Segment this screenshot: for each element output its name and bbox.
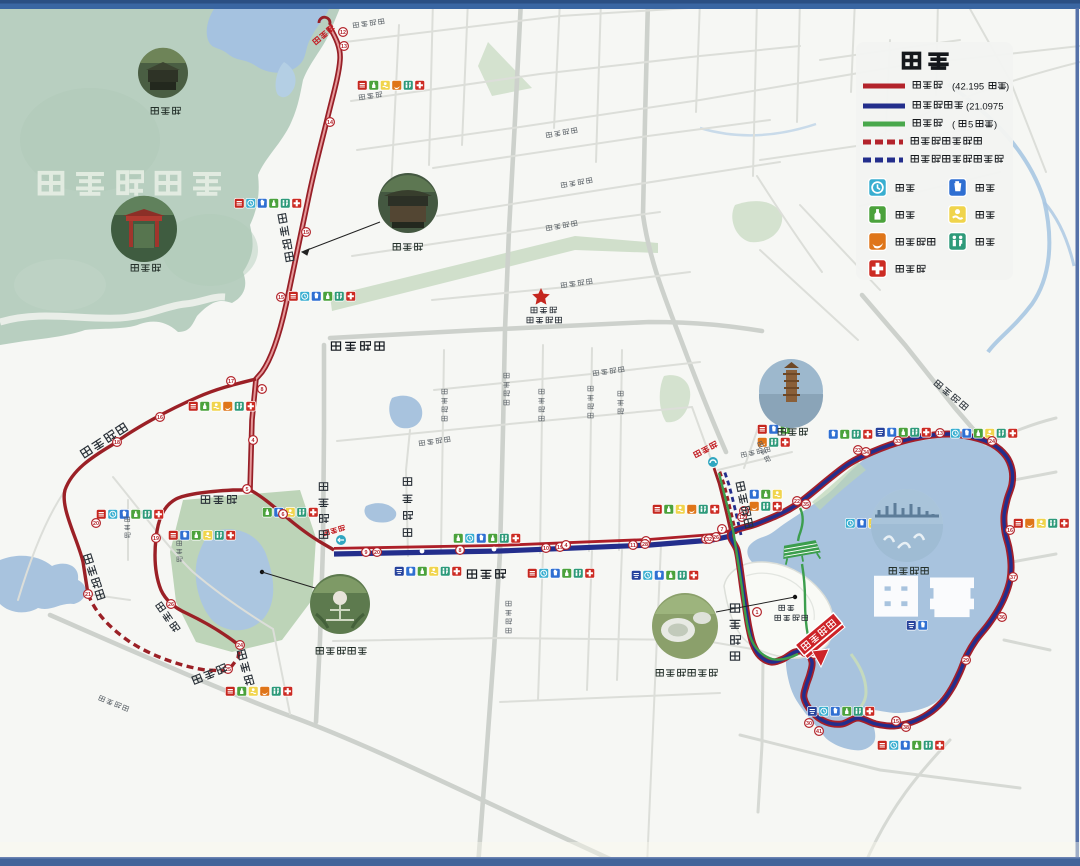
svg-text:34: 34 bbox=[863, 450, 869, 456]
svg-text:19: 19 bbox=[153, 536, 159, 542]
svg-text:6: 6 bbox=[282, 512, 285, 518]
svg-text:29: 29 bbox=[963, 658, 969, 664]
svg-text:7: 7 bbox=[721, 527, 724, 533]
svg-text:36: 36 bbox=[999, 615, 1005, 621]
svg-text:22: 22 bbox=[794, 499, 800, 505]
svg-text:11: 11 bbox=[630, 543, 636, 549]
svg-text:24: 24 bbox=[989, 439, 995, 445]
svg-text:21: 21 bbox=[85, 592, 91, 598]
svg-text:(42.195: (42.195 bbox=[952, 82, 984, 93]
svg-text:12: 12 bbox=[340, 30, 346, 36]
svg-text:): ) bbox=[1006, 82, 1009, 93]
svg-text:13: 13 bbox=[937, 431, 943, 437]
svg-text:8: 8 bbox=[261, 387, 264, 393]
svg-text:14: 14 bbox=[327, 120, 333, 126]
svg-text:9: 9 bbox=[365, 550, 368, 556]
svg-text:5: 5 bbox=[968, 120, 973, 131]
svg-text:15: 15 bbox=[278, 295, 284, 301]
svg-text:13: 13 bbox=[341, 44, 347, 50]
svg-text:15: 15 bbox=[893, 719, 899, 725]
svg-text:35: 35 bbox=[803, 502, 809, 508]
svg-text:17: 17 bbox=[228, 379, 234, 385]
svg-text:38: 38 bbox=[903, 725, 909, 731]
svg-text:4: 4 bbox=[252, 438, 255, 444]
svg-text:20: 20 bbox=[374, 550, 380, 556]
svg-text:26: 26 bbox=[713, 535, 719, 541]
svg-text:8: 8 bbox=[459, 548, 462, 554]
svg-text:33: 33 bbox=[895, 439, 901, 445]
svg-text:24: 24 bbox=[237, 643, 243, 649]
svg-text:): ) bbox=[994, 120, 997, 131]
svg-text:37: 37 bbox=[1010, 575, 1016, 581]
svg-text:28: 28 bbox=[642, 542, 648, 548]
svg-text:(21.0975: (21.0975 bbox=[966, 102, 1004, 113]
svg-text:5: 5 bbox=[246, 487, 249, 493]
svg-text:1: 1 bbox=[756, 610, 759, 616]
svg-text:26: 26 bbox=[168, 602, 174, 608]
svg-text:20: 20 bbox=[93, 521, 99, 527]
svg-text:10: 10 bbox=[543, 546, 549, 552]
svg-text:16: 16 bbox=[157, 415, 163, 421]
svg-text:41: 41 bbox=[816, 729, 822, 735]
svg-text:15: 15 bbox=[303, 230, 309, 236]
svg-text:4: 4 bbox=[565, 543, 568, 549]
svg-text:30: 30 bbox=[806, 721, 812, 727]
svg-text:18: 18 bbox=[114, 440, 120, 446]
svg-text:32: 32 bbox=[706, 537, 712, 543]
svg-text:23: 23 bbox=[855, 448, 861, 454]
svg-text:16: 16 bbox=[1007, 528, 1013, 534]
